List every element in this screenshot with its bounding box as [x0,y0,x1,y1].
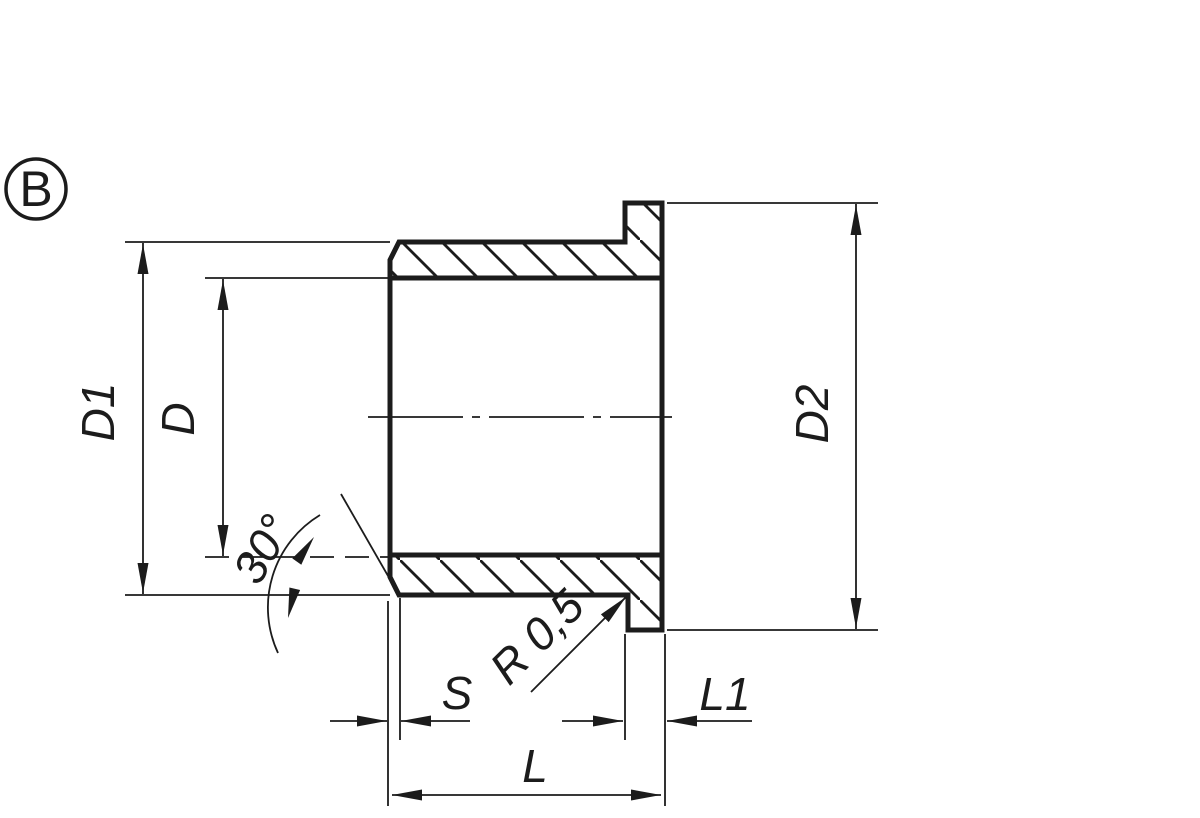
d2-arrow-up [851,205,862,235]
d1-arrow-up [138,244,149,274]
s-arrow-left [357,716,387,727]
view-label-text: B [19,161,52,217]
dim-label-l1: L1 [699,668,750,720]
dimension-lines [125,203,878,806]
arrowheads [138,205,862,801]
l1-arrow-right [667,716,697,727]
d-arrow-down [218,525,229,555]
dim-label-d2: D2 [786,385,838,444]
view-label-group: B [6,159,66,219]
l-arrow-right [631,790,661,801]
l1-arrow-left [593,716,623,727]
l-arrow-left [392,790,422,801]
d2-arrow-down [851,598,862,628]
technical-drawing-page: B D1 D D2 30° R 0,5 S L1 L [0,0,1200,818]
flanged-bushing-drawing: B D1 D D2 30° R 0,5 S L1 L [0,0,1200,818]
angle-label-30deg: 30° [222,506,302,592]
dim-label-d1: D1 [72,383,124,442]
s-arrow-right [401,716,431,727]
dim-label-l: L [522,740,548,792]
angle-arc-arrow-bottom [283,588,300,620]
dim-label-s: S [442,667,473,719]
d1-arrow-down [138,563,149,593]
dim-label-d: D [152,402,204,435]
d-arrow-up [218,280,229,310]
